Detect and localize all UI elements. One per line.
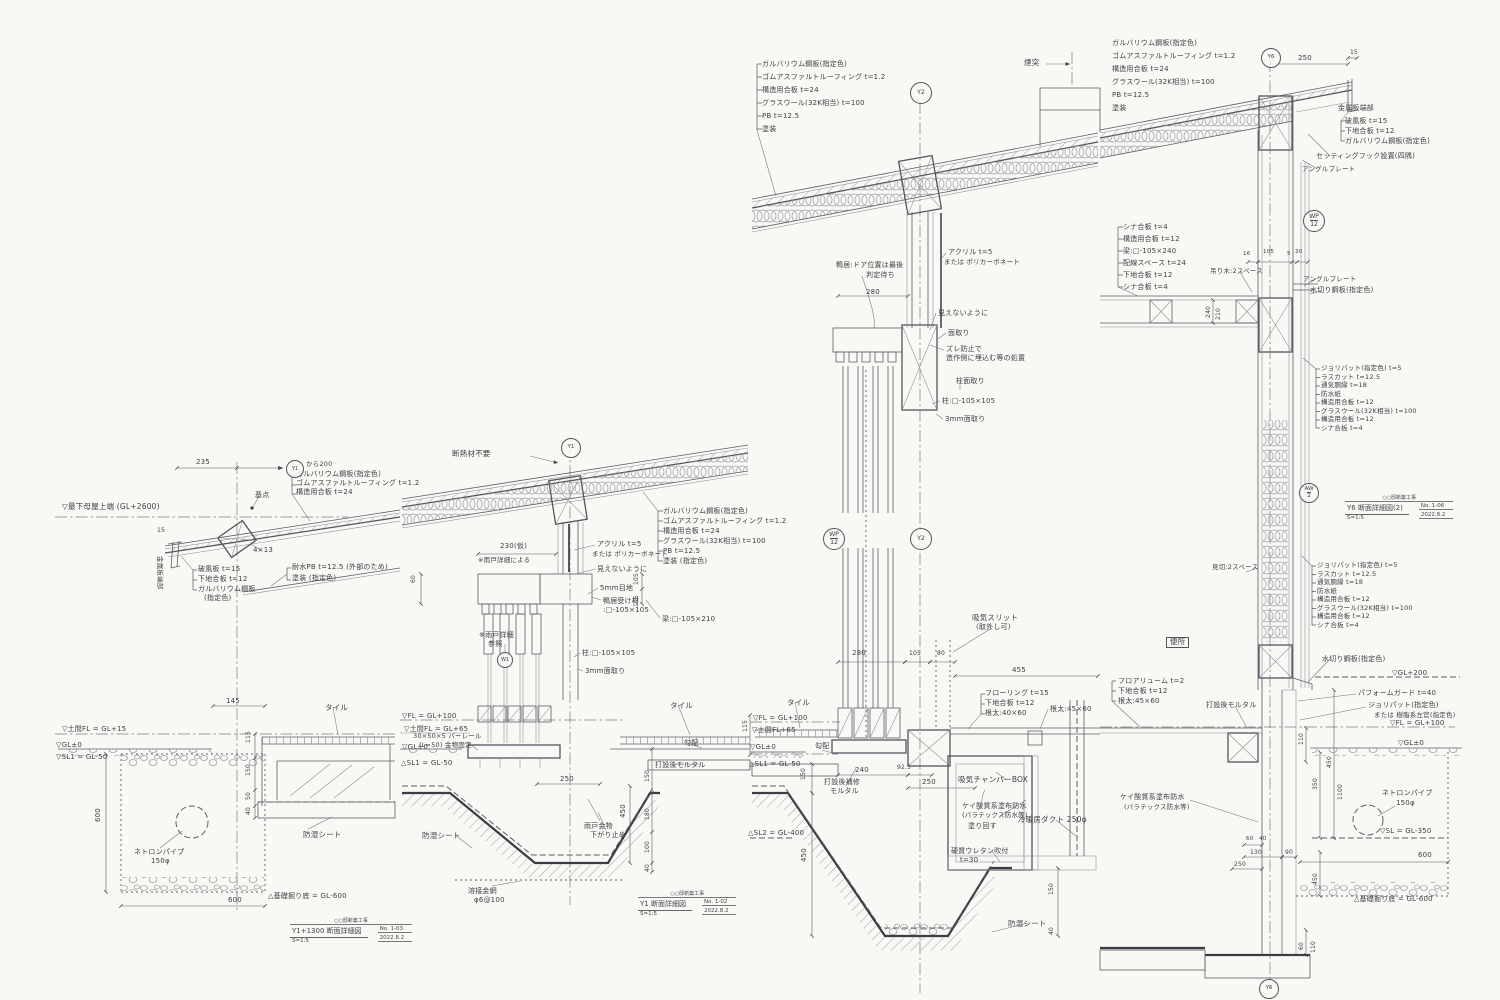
drawing-sheet: [0, 0, 1500, 1000]
detail-wall-y6: [1100, 58, 1462, 998]
detail-eave-y1-1300: [55, 462, 400, 913]
detail-section-y2: [750, 52, 1100, 993]
detail-shutter-y1: [400, 445, 750, 905]
